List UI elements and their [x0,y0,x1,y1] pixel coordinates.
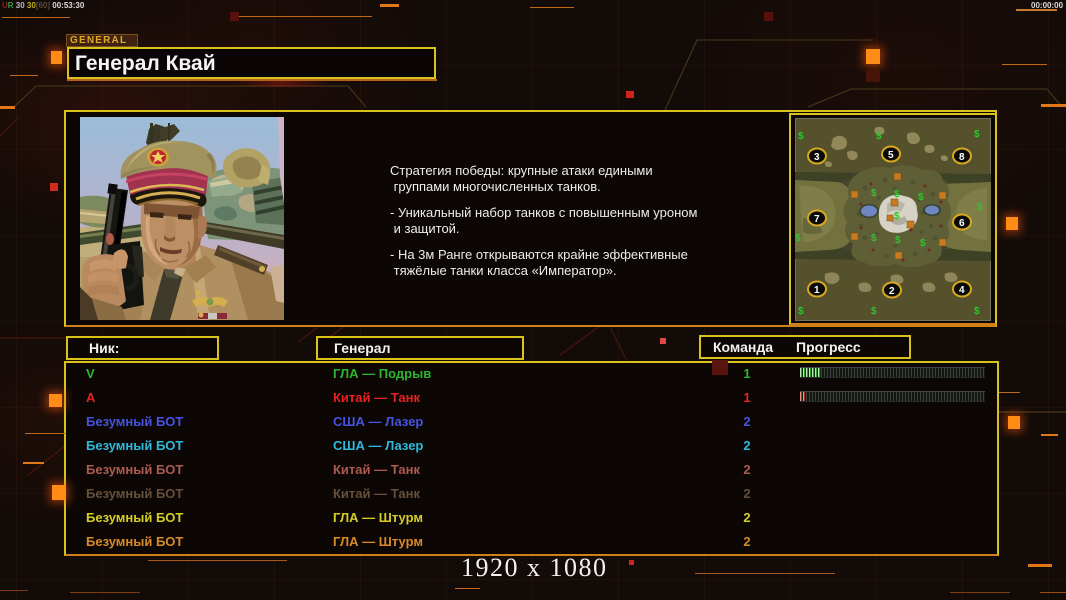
svg-text:$: $ [795,233,801,244]
svg-text:$: $ [871,233,877,244]
svg-text:1: 1 [814,285,820,296]
svg-text:$: $ [894,189,900,200]
svg-text:$: $ [894,211,900,222]
svg-text:$: $ [974,129,980,140]
svg-text:$: $ [974,306,980,317]
svg-text:$: $ [895,235,901,246]
svg-text:$: $ [798,131,804,142]
svg-text:7: 7 [814,214,820,225]
svg-text:3: 3 [814,152,820,163]
svg-text:$: $ [871,188,877,199]
svg-text:$: $ [920,238,926,249]
svg-text:$: $ [977,202,983,213]
svg-text:$: $ [871,306,877,317]
svg-text:$: $ [798,306,804,317]
svg-text:5: 5 [888,150,894,161]
svg-text:6: 6 [959,218,965,229]
svg-text:$: $ [918,192,924,203]
svg-text:8: 8 [959,152,965,163]
svg-text:4: 4 [959,285,965,296]
svg-text:$: $ [876,131,882,142]
svg-text:2: 2 [889,286,895,297]
